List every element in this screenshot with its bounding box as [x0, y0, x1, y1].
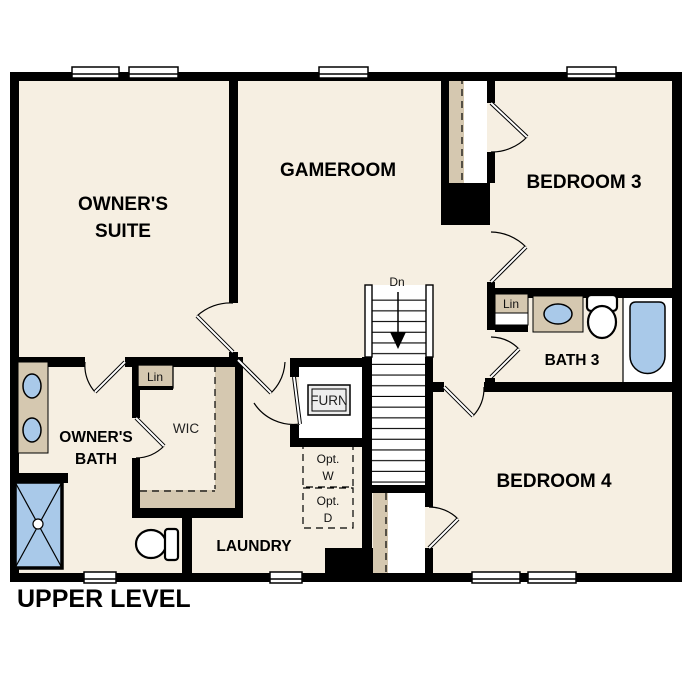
label-bath3: BATH 3: [545, 352, 600, 369]
label-owners-suite-1: OWNER'S: [78, 194, 168, 215]
stair-rail-right: [426, 285, 433, 357]
label-stairs-dn: Dn: [389, 275, 404, 289]
label-opt-washer-1: Opt.: [317, 452, 340, 466]
label-linen-wic: Lin: [147, 370, 163, 384]
label-owners-bath-1: OWNER'S: [59, 429, 132, 446]
sink-icon: [23, 374, 41, 398]
label-opt-washer-2: W: [322, 469, 334, 483]
label-bedroom3: BEDROOM 3: [526, 172, 641, 193]
label-opt-dryer-1: Opt.: [317, 494, 340, 508]
bath3-vanity: [533, 296, 583, 332]
owners-bath-vanity: [18, 362, 48, 453]
label-linen-bath3: Lin: [503, 297, 519, 311]
stair-rail-left: [365, 285, 372, 357]
label-bedroom4: BEDROOM 4: [496, 471, 612, 492]
sink-icon: [544, 304, 572, 324]
shower-drain-icon: [33, 519, 43, 529]
label-opt-dryer-2: D: [324, 511, 333, 525]
stair-treads: [372, 290, 426, 483]
label-gameroom: GAMEROOM: [280, 160, 396, 181]
staircase: [365, 285, 433, 483]
floor-plan: OWNER'S SUITE GAMEROOM BEDROOM 3 BEDROOM…: [0, 0, 687, 687]
toilet-bath3: [587, 295, 617, 338]
floor-plan-page: OWNER'S SUITE GAMEROOM BEDROOM 3 BEDROOM…: [0, 0, 687, 687]
plan-title: UPPER LEVEL: [17, 585, 191, 613]
label-owners-suite-2: SUITE: [95, 221, 151, 242]
sink-icon: [23, 418, 41, 442]
label-laundry: LAUNDRY: [216, 538, 292, 555]
label-owners-bath-2: BATH: [75, 451, 117, 468]
shower: [15, 482, 62, 568]
toilet-owners: [136, 529, 178, 560]
label-furnace: FURN: [310, 393, 348, 408]
label-wic: WIC: [173, 421, 199, 436]
